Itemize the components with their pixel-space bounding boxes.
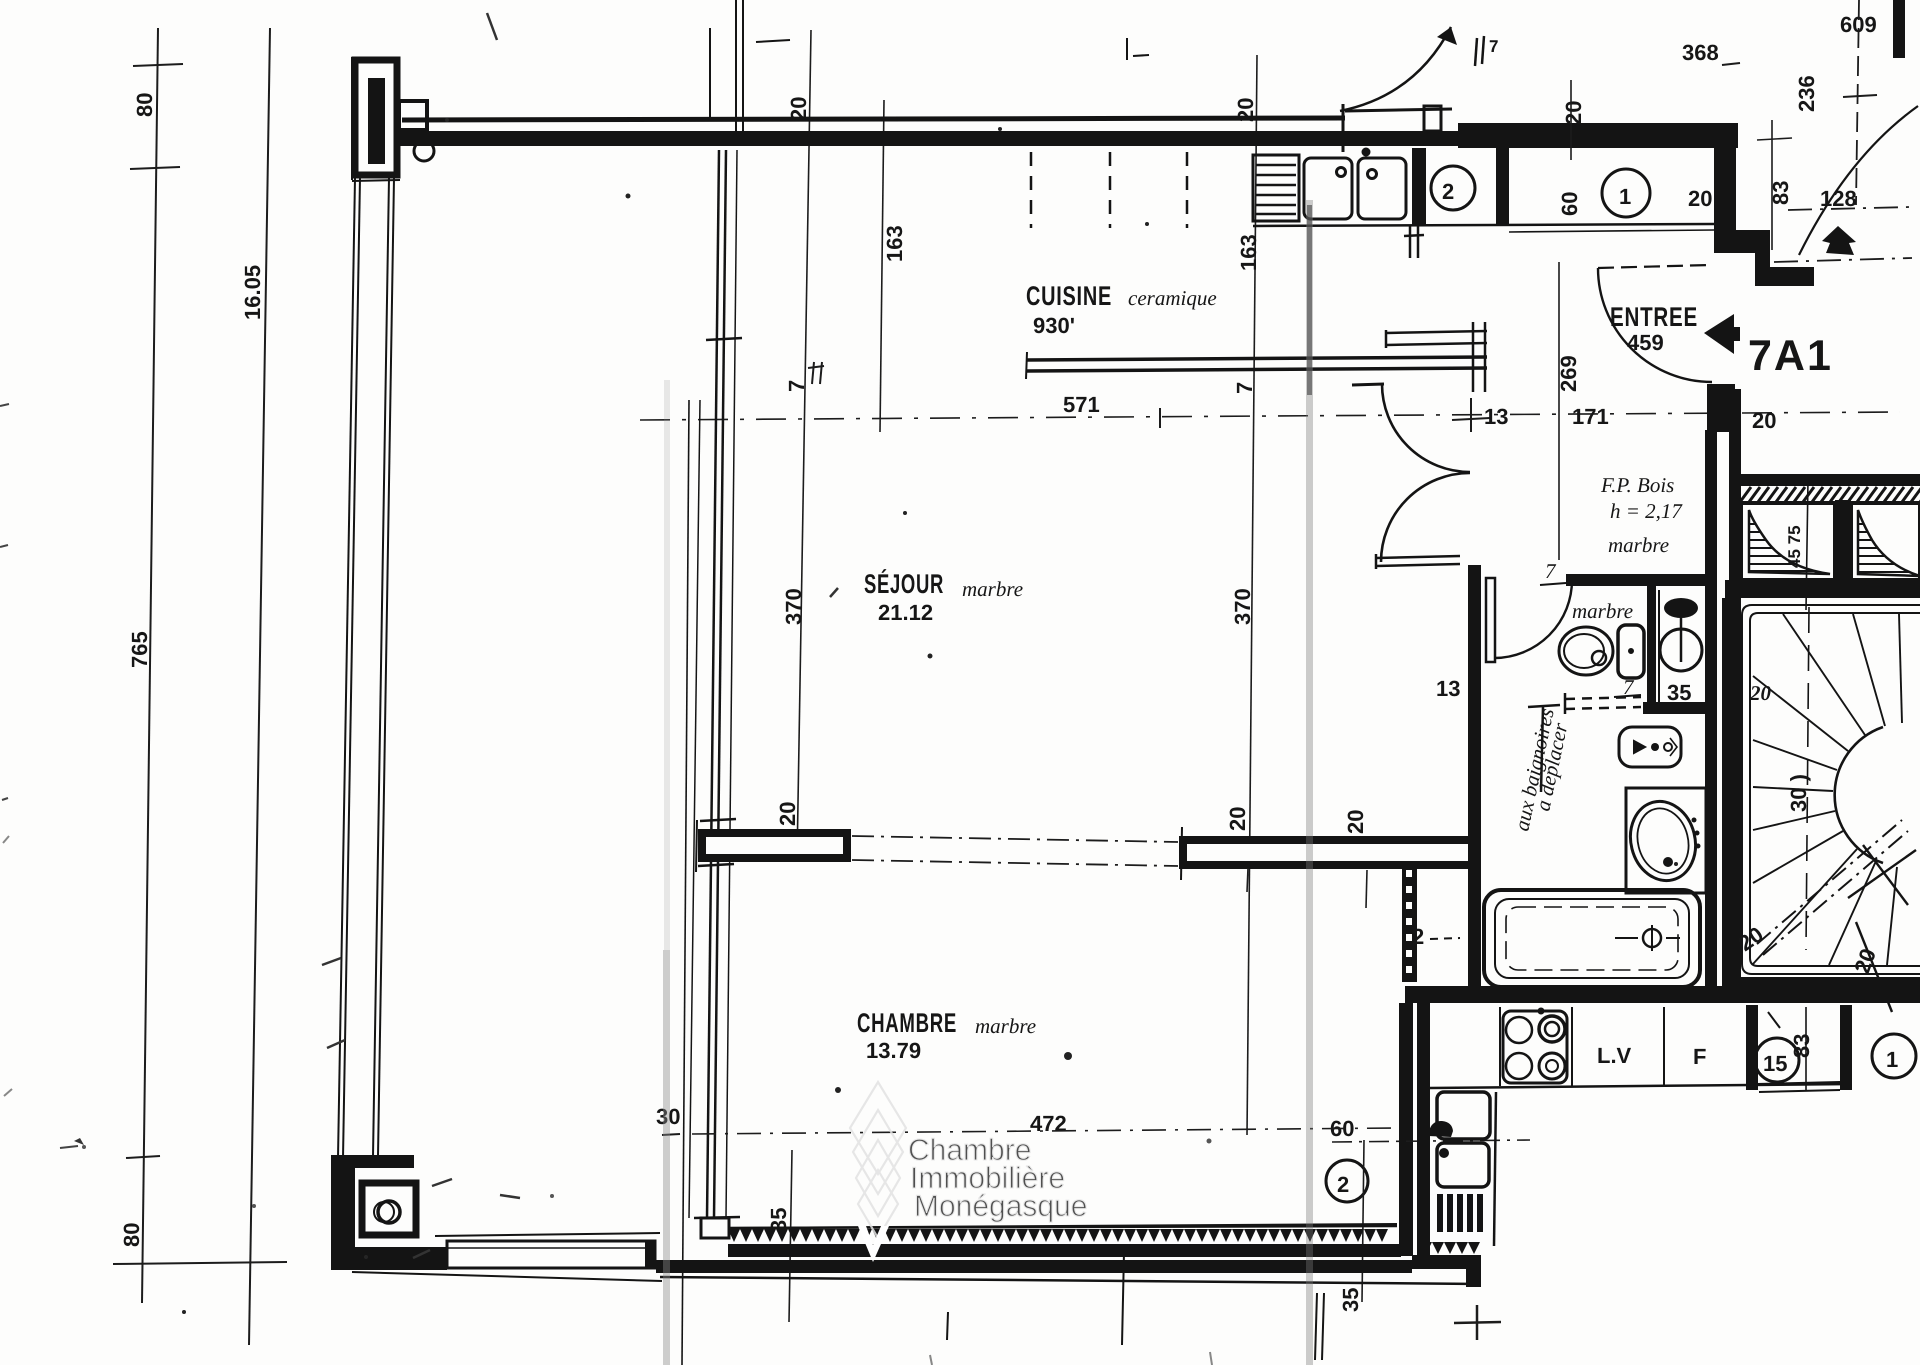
- svg-text:7: 7: [784, 380, 809, 392]
- svg-text:marbre: marbre: [1608, 533, 1669, 557]
- svg-text:7: 7: [1545, 559, 1557, 583]
- svg-text:20: 20: [1225, 807, 1250, 831]
- svg-text:Monégasque: Monégasque: [914, 1190, 1087, 1223]
- svg-text:368: 368: [1682, 40, 1719, 65]
- svg-text:30 ): 30 ): [1786, 774, 1811, 812]
- svg-text:236: 236: [1794, 75, 1819, 112]
- svg-text:20: 20: [1688, 186, 1712, 211]
- svg-text:1: 1: [1886, 1047, 1898, 1072]
- svg-text:80: 80: [132, 93, 157, 117]
- svg-text:765: 765: [127, 631, 152, 668]
- svg-text:370: 370: [781, 588, 806, 625]
- svg-text:163: 163: [882, 225, 907, 262]
- svg-text:7: 7: [1489, 37, 1498, 56]
- svg-text:128: 128: [1820, 186, 1857, 211]
- svg-text:60: 60: [1557, 192, 1582, 216]
- svg-text:ENTREE: ENTREE: [1610, 302, 1698, 332]
- svg-text:13: 13: [1484, 404, 1508, 429]
- svg-text:ceramique: ceramique: [1128, 286, 1217, 310]
- svg-text:20: 20: [1343, 810, 1368, 834]
- svg-text:marbre: marbre: [962, 577, 1023, 601]
- svg-text:CUISINE: CUISINE: [1026, 281, 1112, 311]
- svg-text:20: 20: [1749, 681, 1772, 705]
- svg-text:marbre: marbre: [1572, 599, 1633, 623]
- svg-text:35: 35: [1667, 680, 1691, 705]
- svg-text:h = 2,17: h = 2,17: [1610, 499, 1683, 523]
- svg-text:L.V: L.V: [1597, 1043, 1632, 1068]
- svg-text:2: 2: [1337, 1172, 1349, 1197]
- svg-text:35: 35: [1338, 1288, 1363, 1312]
- svg-text:20: 20: [775, 802, 800, 826]
- svg-text:80: 80: [119, 1223, 144, 1247]
- svg-text:472: 472: [1030, 1111, 1067, 1136]
- svg-text:SÉJOUR: SÉJOUR: [864, 569, 944, 599]
- svg-text:20: 20: [1752, 408, 1776, 433]
- svg-text:21.12: 21.12: [878, 600, 933, 625]
- svg-text:2: 2: [1412, 924, 1424, 949]
- svg-text:F.P. Bois: F.P. Bois: [1600, 473, 1674, 497]
- svg-text:171: 171: [1572, 404, 1609, 429]
- svg-text:13: 13: [1436, 676, 1460, 701]
- svg-text:45 75: 45 75: [1785, 525, 1804, 568]
- svg-text:83: 83: [1789, 1034, 1814, 1058]
- svg-text:7A1: 7A1: [1748, 332, 1833, 380]
- svg-text:20: 20: [1561, 101, 1586, 125]
- svg-text:2: 2: [1442, 179, 1454, 204]
- svg-text:13.79: 13.79: [866, 1038, 921, 1063]
- svg-text:7: 7: [1232, 382, 1257, 394]
- svg-text:571: 571: [1063, 392, 1100, 417]
- svg-text:marbre: marbre: [975, 1014, 1036, 1038]
- svg-text:930': 930': [1033, 313, 1075, 338]
- svg-text:16.05: 16.05: [240, 265, 265, 320]
- svg-text:F: F: [1693, 1044, 1706, 1069]
- svg-text:370: 370: [1230, 588, 1255, 625]
- svg-text:15: 15: [1763, 1051, 1787, 1076]
- svg-text:1: 1: [1619, 184, 1631, 209]
- svg-text:CHAMBRE: CHAMBRE: [857, 1008, 957, 1038]
- svg-text:163: 163: [1236, 234, 1261, 271]
